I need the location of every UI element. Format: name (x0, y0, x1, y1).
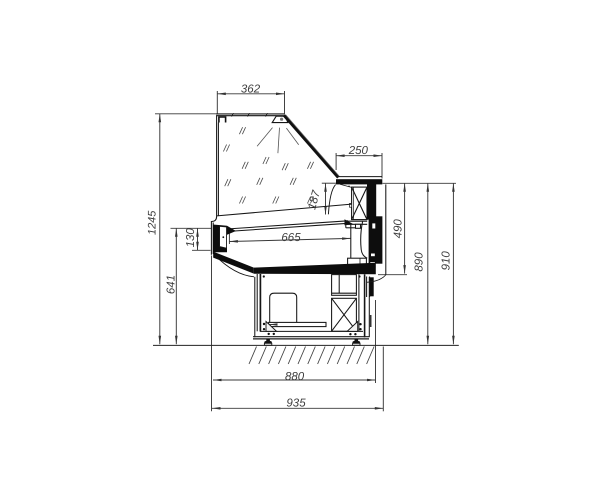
svg-text:490: 490 (393, 219, 405, 239)
svg-text:250: 250 (348, 145, 369, 157)
svg-text:641: 641 (165, 275, 177, 294)
svg-text:130: 130 (185, 228, 197, 248)
svg-text:362: 362 (241, 84, 261, 96)
svg-text:1245: 1245 (146, 210, 158, 235)
svg-text:890: 890 (414, 252, 426, 272)
svg-text:910: 910 (441, 251, 453, 271)
svg-text:665: 665 (281, 232, 301, 244)
svg-text:935: 935 (286, 397, 306, 409)
svg-text:880: 880 (285, 371, 305, 383)
